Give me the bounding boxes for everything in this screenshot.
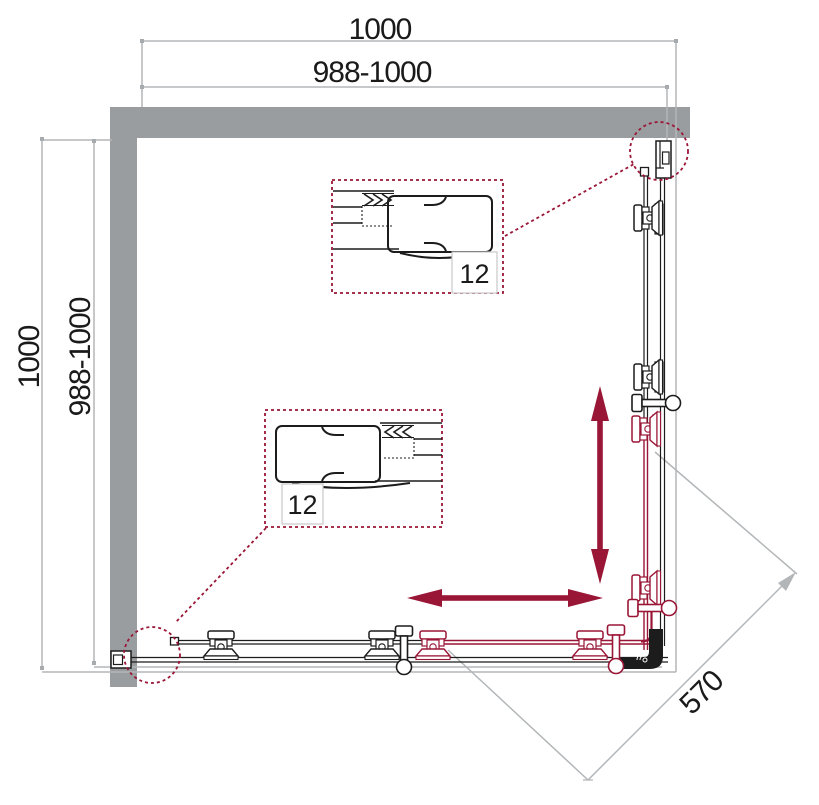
dim-label-side-depth: 1000	[14, 297, 46, 417]
roller-bracket	[365, 631, 399, 660]
dim-label-top-width: 1000	[330, 14, 430, 46]
dim-label-top-width-range: 988-1000	[292, 57, 452, 89]
sliding-doors	[426, 415, 660, 650]
roller-bracket	[632, 412, 661, 446]
roller-bracket	[416, 631, 450, 660]
wall-profile-top-right	[656, 141, 671, 178]
roller-bracket	[204, 631, 238, 660]
sliding-door-right	[641, 415, 660, 650]
roller-bracket	[634, 360, 663, 394]
door-handle-knob	[608, 625, 625, 674]
technical-drawing-page: 1000 988-1000 1000 988-1000 570 12 12	[0, 0, 819, 805]
detail-label-bottom: 12	[282, 489, 323, 521]
diagonal-dimension-line	[448, 452, 797, 780]
slide-direction-arrows	[407, 386, 609, 607]
vertical-slide-arrow-icon	[591, 386, 609, 584]
horizontal-slide-arrow-icon	[407, 589, 603, 607]
side-depth-range-dimension-line	[94, 141, 662, 667]
side-depth-dimension-line	[42, 139, 676, 672]
door-handle-knob	[632, 395, 681, 412]
door-handle-knob	[396, 626, 413, 675]
adjustment-hatch	[364, 194, 391, 206]
wall-bracket-bottom-left	[111, 651, 131, 668]
dimension-lines	[42, 41, 797, 780]
roller-bracket	[634, 201, 663, 235]
wall-left	[110, 107, 137, 687]
callout-leader-top	[505, 164, 634, 236]
detail-label-top: 12	[452, 258, 497, 290]
callout-leader-bottom	[176, 528, 266, 622]
roller-brackets-doors	[416, 412, 661, 660]
fixed-panels	[111, 141, 671, 668]
adjustment-hatch	[385, 426, 412, 438]
wall-top	[110, 107, 690, 138]
sliding-door-bottom	[426, 641, 656, 645]
roller-bracket	[573, 631, 607, 660]
roller-brackets-fixed	[204, 201, 663, 660]
corner-bracket	[619, 629, 663, 669]
dim-label-side-depth-range: 988-1000	[65, 277, 97, 437]
